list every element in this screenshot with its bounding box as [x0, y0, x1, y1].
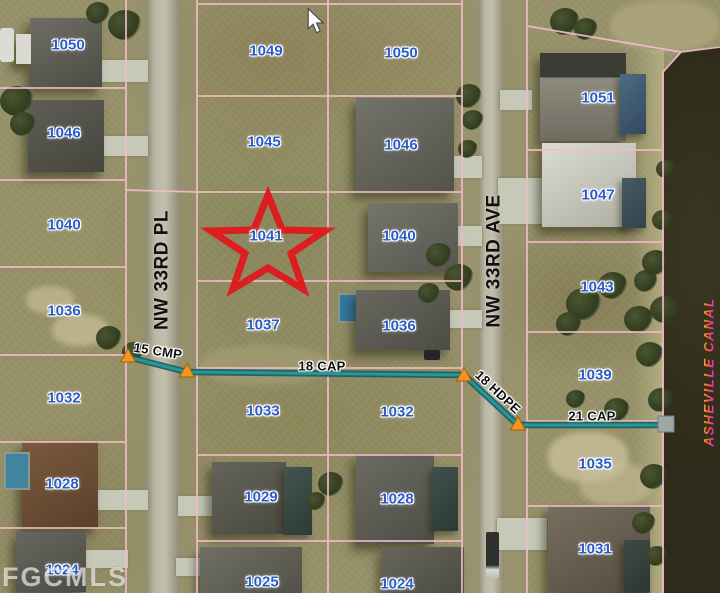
utility-pipeline [121, 349, 675, 433]
parcel-lines [0, 0, 720, 593]
aerial-map[interactable]: 1050104610401036103210281024104910451041… [0, 0, 720, 593]
utility-endpoint-square [658, 416, 674, 432]
map-overlay [0, 0, 720, 593]
mouse-cursor [306, 8, 326, 34]
utility-node-triangles [121, 349, 526, 431]
subject-lot-star-marker [211, 195, 325, 289]
watermark: FGCMLS [2, 562, 128, 593]
